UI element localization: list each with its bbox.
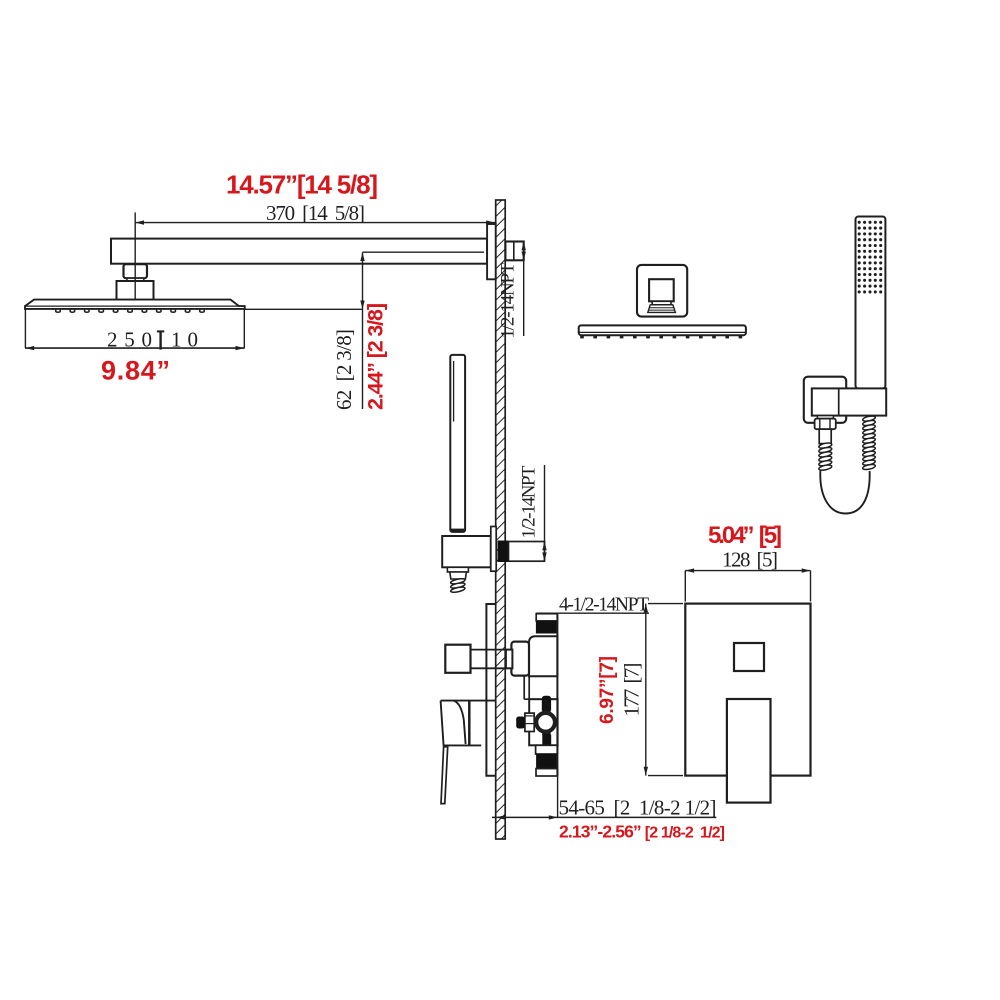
svg-text:1 0: 1 0 — [171, 327, 198, 351]
svg-text:1/2-14NPT: 1/2-14NPT — [498, 262, 519, 338]
svg-text:128 [5]: 128 [5] — [722, 547, 778, 571]
svg-text:4-1/2-14NPT: 4-1/2-14NPT — [559, 595, 649, 616]
svg-text:62 [2 3/8]: 62 [2 3/8] — [332, 329, 356, 410]
svg-text:5.04” [5]: 5.04” [5] — [708, 522, 782, 549]
svg-text:14.57”[14 5/8]: 14.57”[14 5/8] — [226, 170, 378, 200]
svg-text:1/2-14NPT: 1/2-14NPT — [519, 465, 540, 538]
svg-text:6.97”[7]: 6.97”[7] — [597, 656, 618, 724]
svg-text:54-65 [2 1/8-2 1/2]: 54-65 [2 1/8-2 1/2] — [559, 796, 717, 820]
svg-text:370 [14 5/8]: 370 [14 5/8] — [266, 201, 365, 225]
svg-text:2.13”-2.56” [2 1/8-2 1/2]: 2.13”-2.56” [2 1/8-2 1/2] — [559, 822, 725, 842]
svg-text:9.84”: 9.84” — [101, 356, 170, 386]
svg-text:177 [7]: 177 [7] — [620, 663, 644, 717]
svg-text:2 5 0: 2 5 0 — [107, 327, 152, 351]
svg-text:2.44” [2 3/8]: 2.44” [2 3/8] — [364, 303, 388, 410]
